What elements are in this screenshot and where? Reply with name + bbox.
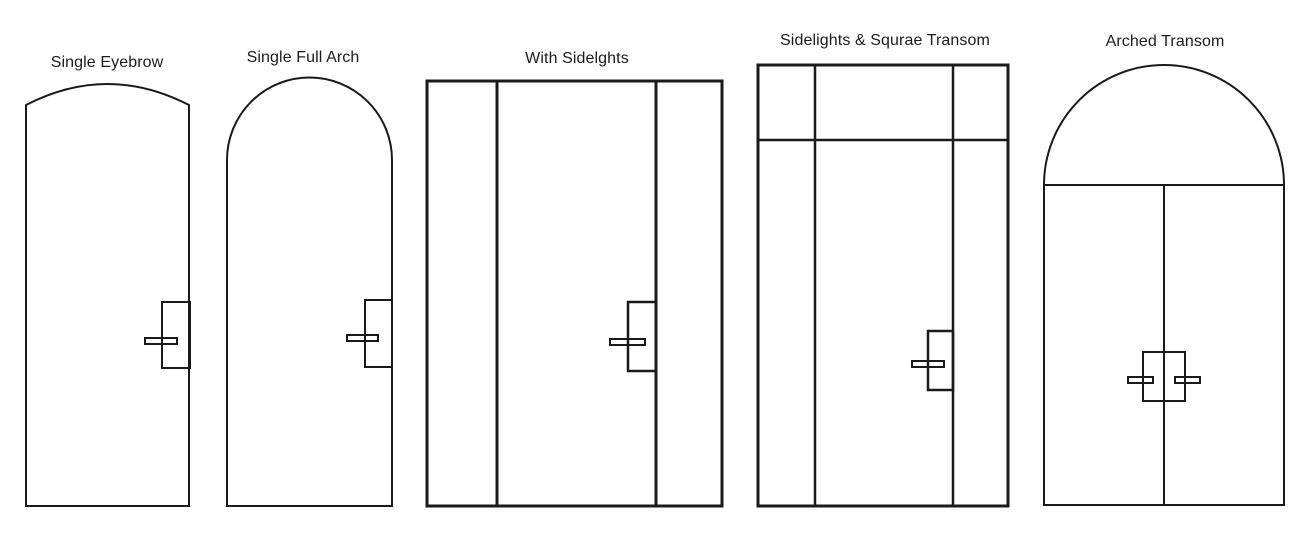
door-handle-plate [365,300,392,367]
door-handle-plate [628,302,656,371]
door-drawing-single-full-arch [227,78,392,506]
door-drawing-arched-transom [1044,65,1284,505]
door-outline [758,65,1008,506]
door-handle-lever-icon [347,335,378,341]
door-outline [26,84,189,506]
left-door-handle-lever-icon [1128,377,1153,383]
door-drawing-with-sidelights [427,81,722,506]
door-outline [427,81,722,506]
door-handle-plate [162,302,190,368]
door-outline [227,78,392,506]
right-door-handle-lever-icon [1175,377,1200,383]
door-styles-diagram: Single Eyebrow Single Full Arch With Sid… [0,0,1315,536]
door-drawing-single-eyebrow [26,84,190,506]
door-drawing-sidelights-square-transom [758,65,1008,506]
door-drawings-canvas [0,0,1315,536]
